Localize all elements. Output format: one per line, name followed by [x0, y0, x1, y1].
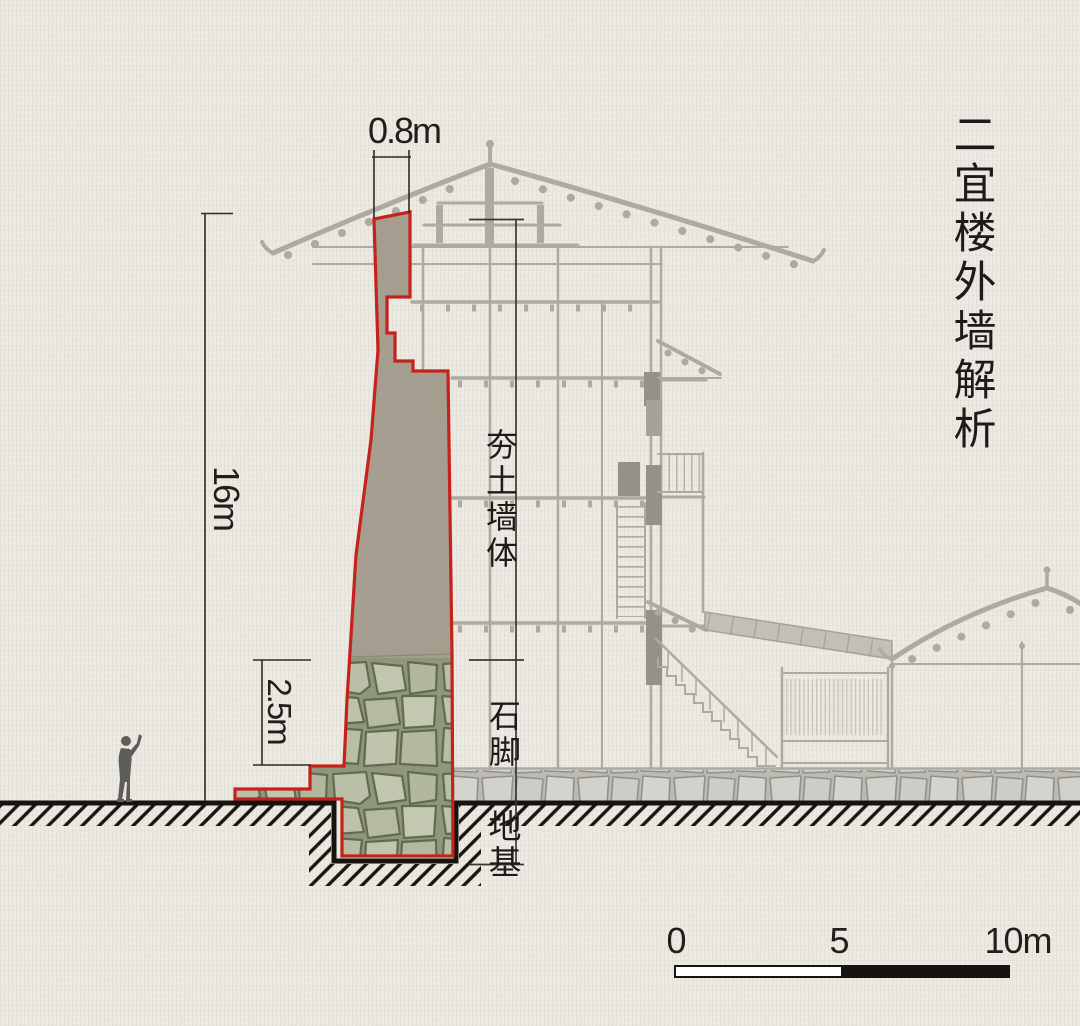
- section-drawing-svg: [0, 0, 1080, 1026]
- paper-texture: [0, 0, 1080, 1026]
- dimension-wall-height: 16m: [209, 438, 247, 558]
- diagram-title: 二宜楼外墙解析: [939, 112, 1001, 455]
- architectural-section-page: 0.8m 16m 2.5m 夯土墙体 石脚 地基 二宜楼外墙解析 0 5 10m: [0, 0, 1080, 1026]
- label-foundation: 地基: [477, 809, 525, 881]
- scale-label-middle: 5: [819, 920, 859, 962]
- stone-paving-strip: [452, 770, 1080, 801]
- scale-label-start: 0: [656, 920, 696, 962]
- dimension-stone-foot-height: 2.5m: [264, 656, 298, 766]
- dimension-top-width: 0.8m: [356, 110, 452, 152]
- label-rammed-earth-wall: 夯土墙体: [477, 428, 523, 572]
- scale-label-end: 10m: [978, 920, 1058, 962]
- label-stone-foot: 石脚: [480, 699, 526, 771]
- scale-bar: [675, 965, 1009, 978]
